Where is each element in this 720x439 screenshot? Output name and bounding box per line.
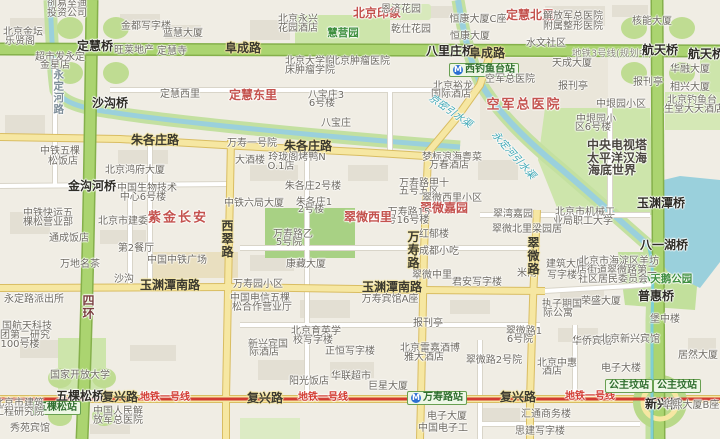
poi-label[interactable]: 号16号楼 [387, 216, 430, 226]
poi-label[interactable]: 报刊亭 [633, 78, 663, 88]
poi-label[interactable]: 6号楼 [309, 99, 335, 109]
poi-label[interactable]: 大酒楼 [235, 156, 265, 166]
poi-label[interactable]: 社区居民委员会 [578, 275, 648, 285]
station-name: 万寿路站 [423, 393, 463, 403]
poi-label[interactable]: 华融大厦 [670, 65, 710, 75]
poi-label[interactable]: 定慧寺 [157, 47, 187, 57]
road-label: 朱各庄路 [131, 134, 179, 146]
poi-label[interactable]: 沙沟 [114, 275, 134, 285]
poi-label[interactable]: 空军总医院 [485, 75, 535, 85]
poi-label[interactable]: 中国电子工 [418, 424, 468, 434]
poi-label[interactable]: 松合作营业厅 [232, 303, 292, 313]
metro-icon: M [453, 65, 463, 75]
poi-label[interactable]: 翠微北里 [492, 225, 532, 235]
poi-label[interactable]: 永定路派出所 [4, 295, 64, 305]
poi-label[interactable]: 松饭店 [48, 157, 78, 167]
poi-label[interactable]: 生堂大天酒店 [664, 105, 720, 115]
poi-label[interactable]: 定慧西里 [160, 90, 200, 100]
poi-label[interactable]: 北京鸿府大厦 [105, 166, 165, 176]
waterway-label: 永定河引水渠 [489, 130, 537, 181]
poi-label[interactable]: 国家开放大学 [50, 371, 110, 381]
poi-label[interactable]: 恒康大厦C座 [450, 15, 507, 25]
bridge-label: 玉渊潭桥 [637, 197, 685, 209]
poi-label[interactable]: 2号楼 [298, 205, 324, 215]
district-label: 紫金长安 [148, 212, 208, 225]
poi-label[interactable]: 恒康大厦 [450, 32, 490, 42]
poi-label[interactable]: 海底世界 [588, 164, 636, 176]
road-label: 复兴路 [102, 391, 138, 403]
poi-label[interactable]: 床肿瘤学院 [285, 66, 335, 76]
poi-label[interactable]: 中心6号楼 [120, 193, 166, 203]
road-label: 阜成路 [469, 47, 505, 59]
poi-label[interactable]: 通成饭店 [49, 234, 89, 244]
poi-label[interactable]: 梁园居 [532, 225, 562, 235]
poi-label[interactable]: 正恒写字楼 [325, 347, 375, 357]
poi-label[interactable]: 万地名茶 [60, 260, 100, 270]
district-label: 翠微西里 [344, 211, 392, 223]
poi-label[interactable]: 工程研究院 [0, 408, 44, 418]
poi-label[interactable]: 恩济花园 [381, 5, 421, 15]
road-label-vertical: 翠微路 [527, 237, 539, 276]
poi-label[interactable]: 酒店 [542, 367, 562, 377]
poi-label[interactable]: 阳光饭店 [289, 377, 329, 387]
poi-label[interactable]: 华熙大厦B座 [663, 401, 720, 411]
poi-label[interactable]: 5号院 [276, 238, 302, 248]
poi-label[interactable]: 雅大酒店 [404, 353, 444, 363]
poi-label[interactable]: 6号院 [507, 335, 533, 345]
district-label: 空军总医院 [486, 99, 561, 112]
poi-label[interactable]: 投资公司 [47, 9, 87, 19]
map-labels-layer: 北京印象定慧北里创易至迪投资公司北京金坛乐贤阁金都写字楼蓝慧大厦定慧桥旺莱地产定… [0, 0, 720, 439]
poi-label[interactable]: 电子大楼 [601, 364, 641, 374]
map-canvas[interactable]: 北京印象定慧北里创易至迪投资公司北京金坛乐贤阁金都写字楼蓝慧大厦定慧桥旺莱地产定… [0, 0, 720, 439]
park-label: 慧营园 [327, 28, 359, 39]
bridge-label: 金沟河桥 [68, 180, 116, 192]
poi-label[interactable]: 秀苑宾馆 [10, 424, 50, 434]
poi-label[interactable]: 写字楼 [547, 271, 577, 281]
poi-label[interactable]: 花园酒店 [278, 24, 318, 34]
poi-label[interactable]: 北京市建委 [98, 217, 148, 227]
poi-label[interactable]: 区6号楼 [575, 123, 611, 133]
poi-label[interactable]: 蓝慧大厦 [163, 29, 203, 39]
poi-label[interactable]: 八宝庄 [321, 119, 351, 129]
poi-label[interactable]: 报刊亭 [558, 82, 588, 92]
metro-station-badge[interactable]: 公主坟站 [653, 379, 701, 393]
poi-label[interactable]: 君安写字楼 [452, 278, 502, 288]
bridge-label: 八一湖桥 [640, 239, 688, 251]
road-label: 复兴路 [247, 392, 283, 404]
poi-label[interactable]: 居然大厦 [678, 351, 718, 361]
poi-label[interactable]: 华联超市 [331, 372, 371, 382]
road-label-vertical: 万寿路 [407, 231, 419, 270]
bridge-label: 八里庄桥 [426, 45, 474, 57]
bridge-label: 航天桥 [642, 44, 678, 56]
poi-label[interactable]: 中铁六局大厦 [224, 199, 284, 209]
metro-station-badge[interactable]: M万寿路站 [407, 391, 467, 405]
poi-label[interactable]: 翠微路2号院 [466, 356, 522, 366]
poi-label[interactable]: 报刊亭 [413, 319, 443, 329]
poi-label[interactable]: 核能大厦 [632, 17, 672, 27]
poi-label[interactable]: 天成大厦 [552, 59, 592, 69]
poi-label[interactable]: 乐贤阁 [5, 37, 35, 47]
metro-station-badge[interactable]: 公主坟站 [605, 379, 653, 393]
poi-label[interactable]: 放军总医院 [93, 416, 143, 426]
poi-label[interactable]: 朱各庄2号楼 [285, 182, 341, 192]
road-label: 朱各庄路 [284, 140, 332, 152]
poi-label[interactable]: 万寿宾馆A座 [362, 295, 419, 305]
poi-label[interactable]: 中央电视塔 [587, 139, 647, 151]
poi-label[interactable]: 万春酒店 [429, 161, 469, 171]
poi-label[interactable]: 中国中铁广场 [147, 256, 207, 266]
poi-label[interactable]: 翠湾嘉园 [493, 210, 533, 220]
poi-label[interactable]: 成都小吃 [419, 247, 459, 257]
poi-label[interactable]: 堡中楼 [650, 315, 680, 325]
bridge-label: 航天桥东 [688, 48, 720, 60]
district-label: 定慧东里 [229, 89, 277, 101]
bridge-label: 沙沟桥 [92, 97, 128, 109]
poi-label[interactable]: 巨星大厦 [368, 382, 408, 392]
poi-label[interactable]: 旺莱地产 [114, 46, 154, 56]
poi-label[interactable]: 荣盛大厦 [581, 297, 621, 307]
poi-label[interactable]: 际公寓 [543, 309, 573, 319]
road-label-vertical: 西翠路 [221, 220, 233, 259]
poi-label[interactable]: 校写字楼 [293, 336, 333, 346]
poi-label[interactable]: 红郁楼 [419, 230, 449, 240]
subway-line-label: 地铁一号线 [565, 392, 615, 402]
poi-label[interactable]: 中垠园小区 [596, 100, 646, 110]
poi-label[interactable]: 100号楼 [0, 340, 39, 350]
poi-label[interactable]: 思建写字楼 [515, 427, 565, 437]
poi-label[interactable]: 乾仕花园 [391, 25, 431, 35]
bridge-label: 定慧桥 [77, 40, 113, 52]
poi-label[interactable]: 康藏大厦 [286, 260, 326, 270]
poi-label[interactable]: 万寿园小区 [233, 280, 283, 290]
road-label: 阜成路 [225, 42, 261, 54]
poi-label[interactable]: 际酒店 [249, 348, 279, 358]
road-label-vertical: 永定河路 [53, 69, 64, 115]
road-label: 玉渊潭南路 [362, 281, 422, 293]
poi-label[interactable]: 水文社区 [526, 39, 566, 49]
poi-label[interactable]: 北京新兴宾馆 [600, 335, 660, 345]
poi-label[interactable]: 汇通商务楼 [521, 410, 571, 420]
poi-label[interactable]: 电子大厦 [427, 412, 467, 422]
bridge-label: 普惠桥 [638, 290, 674, 302]
metro-icon: M [411, 393, 421, 403]
poi-label[interactable]: 棵松营业部 [23, 218, 73, 228]
poi-label[interactable]: 北京肿瘤医院 [330, 57, 390, 67]
poi-label[interactable]: 业局职工大学 [553, 217, 613, 227]
road-label: 玉渊潭南路 [140, 279, 200, 291]
subway-line-label: 地铁一号线 [140, 393, 190, 403]
poi-label[interactable]: 万寿一号院 [227, 139, 277, 149]
poi-label[interactable]: 附属整形医院 [543, 22, 603, 32]
road-label-vertical: 四环 [82, 294, 94, 320]
road-label: 复兴路 [500, 391, 536, 403]
poi-label[interactable]: 第2餐厅 [118, 244, 154, 254]
poi-label[interactable]: 相兴大厦 [670, 83, 710, 93]
subway-line-label: 地铁一号线 [298, 393, 348, 403]
poi-label[interactable]: O.1店 [267, 162, 294, 172]
